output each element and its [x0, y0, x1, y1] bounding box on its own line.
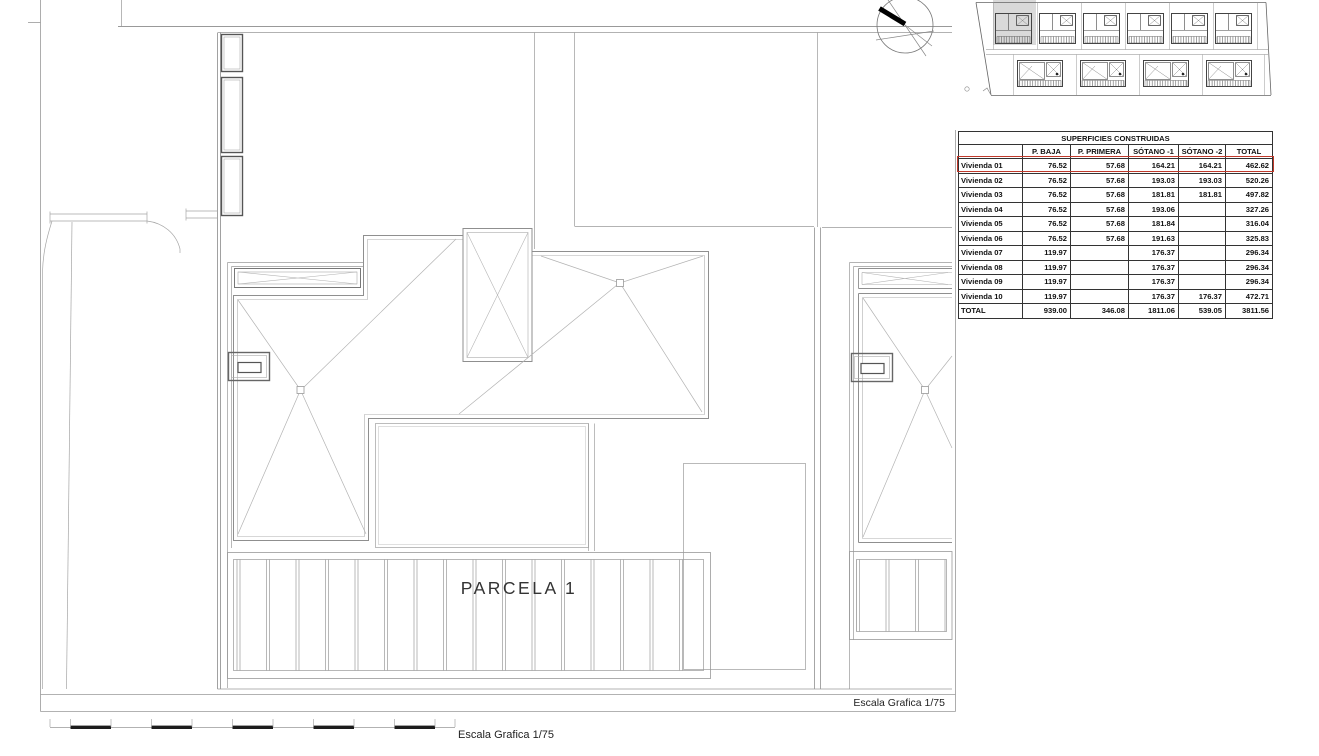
col-header	[959, 145, 1023, 159]
table-row: Vivienda 08 119.97 176.37 296.34	[959, 260, 1273, 275]
table-row: Vivienda 09 119.97 176.37 296.34	[959, 275, 1273, 290]
table-row: Vivienda 10 119.97 176.37 176.37 472.71	[959, 289, 1273, 304]
roof-hips	[238, 239, 703, 534]
table-header-row: P. BAJA P. PRIMERA SÓTANO -1 SÓTANO -2 T…	[959, 145, 1273, 159]
table-title: SUPERFICIES CONSTRUIDAS	[959, 132, 1273, 145]
site-plan-svg	[0, 0, 1319, 756]
deck-parcela-2	[850, 552, 953, 640]
house-1-roof	[229, 229, 709, 541]
roof-hips-2	[863, 298, 952, 537]
bottom-scale-caption: Escala Grafica 1/75	[458, 729, 554, 741]
parcel-divider	[815, 228, 821, 690]
table-row: Vivienda 05 76.52 57.68 181.84 316.04	[959, 217, 1273, 232]
house-2-roof	[850, 263, 953, 690]
street-left	[43, 209, 218, 690]
col-header: SÓTANO -2	[1179, 145, 1226, 159]
key-plan-bottom-row	[1018, 61, 1252, 87]
table-row: Vivienda 02 76.52 57.68 193.03 193.03 52…	[959, 173, 1273, 188]
table-row: Vivienda 01 76.52 57.68 164.21 164.21 46…	[959, 159, 1273, 174]
table-row: Vivienda 04 76.52 57.68 193.06 327.26	[959, 202, 1273, 217]
table-row-total: TOTAL 939.00 346.08 1811.06 539.05 3811.…	[959, 304, 1273, 319]
planter-box-2	[859, 269, 953, 289]
scale-bar	[50, 719, 455, 729]
col-header: P. PRIMERA	[1071, 145, 1129, 159]
col-header: SÓTANO -1	[1129, 145, 1179, 159]
table-title-row: SUPERFICIES CONSTRUIDAS	[959, 132, 1273, 145]
deck-parcela-1	[228, 553, 711, 679]
planter-box	[235, 269, 361, 288]
col-header: P. BAJA	[1023, 145, 1071, 159]
site-plan-sheet: PARCELA 1 Escala Grafica 1/75 Escala Gra…	[0, 0, 1319, 756]
frame-scale-caption: Escala Grafica 1/75	[640, 695, 945, 711]
skylight	[463, 229, 532, 362]
chimney-1	[229, 353, 270, 381]
superficies-table: SUPERFICIES CONSTRUIDAS P. BAJA P. PRIME…	[958, 131, 1272, 319]
key-plan	[965, 0, 1271, 96]
chimney-2	[852, 354, 893, 382]
wall-piers	[222, 35, 243, 216]
table-row: Vivienda 06 76.52 57.68 191.63 325.83	[959, 231, 1273, 246]
site-boundary-top	[118, 0, 952, 33]
parcela-label: PARCELA 1	[419, 578, 619, 599]
table-row: Vivienda 03 76.52 57.68 181.81 181.81 49…	[959, 188, 1273, 203]
table-row: Vivienda 07 119.97 176.37 296.34	[959, 246, 1273, 261]
col-header: TOTAL	[1226, 145, 1273, 159]
north-arrow-icon	[876, 0, 934, 56]
